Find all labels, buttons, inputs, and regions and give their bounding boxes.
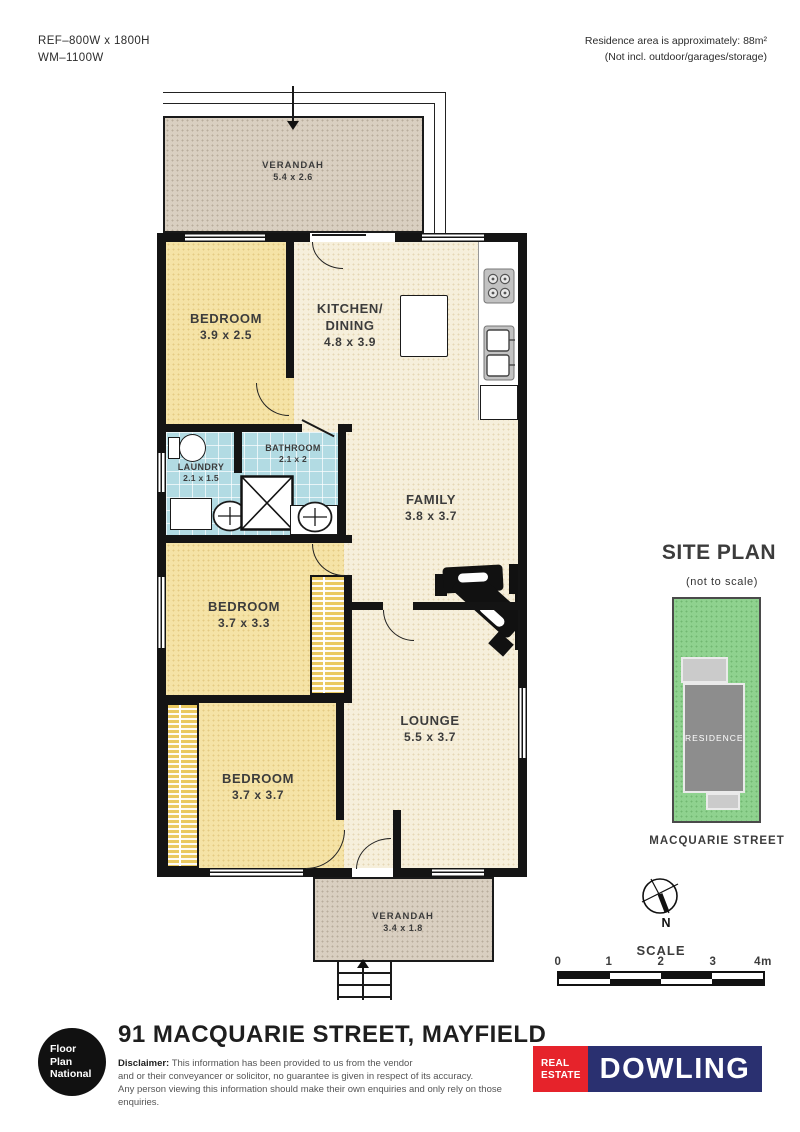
bedroom2-label: BEDROOM 3.7 x 3.3 xyxy=(208,598,280,631)
rear-door-opening xyxy=(352,868,393,877)
bedroom1-name: BEDROOM xyxy=(190,310,262,327)
steps-rail-right xyxy=(390,962,392,1000)
logo-line-3: National xyxy=(50,1068,91,1081)
area-line-2: (Not incl. outdoor/garages/storage) xyxy=(585,49,767,65)
bedroom3-label: BEDROOM 3.7 x 3.7 xyxy=(222,770,294,803)
wall-right xyxy=(518,233,527,877)
kitchen-label: KITCHEN/ DINING 4.8 x 3.9 xyxy=(317,300,383,350)
laundry-name: LAUNDRY xyxy=(178,462,224,473)
bedroom1-dims: 3.9 x 2.5 xyxy=(190,327,262,343)
verandah-top-dims: 5.4 x 2.6 xyxy=(262,172,324,183)
agency-logo-red-block: REAL ESTATE xyxy=(533,1046,588,1092)
site-plan-verandah-bottom xyxy=(706,793,740,810)
compass-north-label: N xyxy=(661,916,670,930)
scale-tick-0: 0 xyxy=(555,956,562,968)
laundry-label: LAUNDRY 2.1 x 1.5 xyxy=(178,462,224,483)
logo-line-2: Plan xyxy=(50,1056,91,1069)
site-plan-subtitle: (not to scale) xyxy=(686,572,758,590)
verandah-bottom-label: VERANDAH 3.4 x 1.8 xyxy=(372,911,434,934)
disclaimer-label: Disclaimer: xyxy=(118,1058,169,1069)
steps-rung-2 xyxy=(337,984,392,986)
kitchen-name-2: DINING xyxy=(317,317,383,334)
entry-arrow-head-icon xyxy=(287,121,299,130)
lounge-label: LOUNGE 5.5 x 3.7 xyxy=(400,712,459,745)
laundry-tub xyxy=(170,498,212,530)
wall-left xyxy=(157,233,166,877)
entry-arrow-line xyxy=(292,86,294,122)
scale-tick-1: 1 xyxy=(606,956,613,968)
kitchen-dims: 4.8 x 3.9 xyxy=(317,334,383,350)
site-plan-residence: RESIDENCE xyxy=(683,683,745,793)
wall-hall-stub xyxy=(393,810,401,868)
steps-arrow-head-icon xyxy=(357,959,369,968)
site-plan-title-text: SITE PLAN xyxy=(662,541,776,564)
scale-tick-2: 2 xyxy=(658,956,665,968)
lounge-dims: 5.5 x 3.7 xyxy=(400,729,459,745)
site-plan-street-label: MACQUARIE STREET xyxy=(649,831,784,849)
bedroom2-dims: 3.7 x 3.3 xyxy=(208,615,280,631)
ref-line-2: WM–1100W xyxy=(38,50,150,67)
verandah-top-label: VERANDAH 5.4 x 2.6 xyxy=(262,160,324,183)
floorplan-page: REF–800W x 1800H WM–1100W Residence area… xyxy=(0,0,800,1132)
disclaimer-line-2: and or their conveyancer or solicitor, n… xyxy=(118,1070,538,1083)
area-notes: Residence area is approximately: 88m² (N… xyxy=(585,33,767,65)
stove-icon xyxy=(483,268,515,304)
scale-bar xyxy=(557,971,765,986)
verandah-bottom-name: VERANDAH xyxy=(372,911,434,923)
verandah-bottom-dims: 3.4 x 1.8 xyxy=(372,923,434,934)
bedroom2-name: BEDROOM xyxy=(208,598,280,615)
logo-line-1: Floor xyxy=(50,1043,91,1056)
wall-laundry-divider xyxy=(234,432,242,473)
window-bedroom1-top xyxy=(185,233,265,242)
scale-bar-row-2 xyxy=(559,979,763,985)
ref-line-1: REF–800W x 1800H xyxy=(38,33,150,50)
street-label-text: MACQUARIE STREET xyxy=(649,835,784,847)
agency-logo-navy-block: DOWLING xyxy=(588,1046,762,1092)
wall-bedroom2-right xyxy=(344,575,352,695)
wardrobe-bedroom-3 xyxy=(166,703,199,868)
site-plan-title: SITE PLAN xyxy=(662,541,776,565)
lounge-name: LOUNGE xyxy=(400,712,459,729)
agency-name: DOWLING xyxy=(600,1053,751,1085)
family-name: FAMILY xyxy=(405,491,457,508)
window-lounge-right xyxy=(518,688,527,758)
site-plan-residence-label: RESIDENCE xyxy=(685,733,743,743)
family-label: FAMILY 3.8 x 3.7 xyxy=(405,491,457,524)
scale-tick-3: 3 xyxy=(710,956,717,968)
window-laundry-left xyxy=(157,453,166,492)
window-kitchen-top xyxy=(422,233,484,242)
wall-family-lounge-a xyxy=(344,602,383,610)
ref-notes: REF–800W x 1800H WM–1100W xyxy=(38,33,150,67)
steps-arrow-line xyxy=(362,968,364,1000)
bathroom-basin-icon xyxy=(297,501,333,534)
site-plan-subtitle-text: (not to scale) xyxy=(686,576,758,588)
window-bedroom3-bottom xyxy=(210,868,303,877)
agency-estate: ESTATE xyxy=(541,1070,581,1082)
compass-icon: N xyxy=(630,868,694,932)
agency-real: REAL xyxy=(541,1058,581,1070)
wall-bedroom3-right xyxy=(336,703,344,820)
scale-tick-4: 4m xyxy=(754,956,772,968)
kitchen-sink-icon xyxy=(483,325,515,381)
steps-rung-1 xyxy=(337,972,392,974)
kitchen-island xyxy=(400,295,448,357)
kitchen-name-1: KITCHEN/ xyxy=(317,300,383,317)
window-bedroom2-left xyxy=(157,577,166,648)
front-door-leaf xyxy=(312,234,366,236)
bedroom3-dims: 3.7 x 3.7 xyxy=(222,787,294,803)
window-lounge-bottom xyxy=(432,868,484,877)
fireplace-icon xyxy=(433,558,525,670)
shower-icon xyxy=(240,475,294,531)
bedroom1-label: BEDROOM 3.9 x 2.5 xyxy=(190,310,262,343)
disclaimer-line-1: Disclaimer: This information has been pr… xyxy=(118,1057,538,1070)
floorplan-national-logo: Floor Plan National xyxy=(38,1028,106,1096)
verandah-top-name: VERANDAH xyxy=(262,160,324,172)
wall-bath-right xyxy=(338,424,346,543)
wall-bath-bottom xyxy=(166,535,352,543)
steps-rail-left xyxy=(337,962,339,1000)
bedroom3-name: BEDROOM xyxy=(222,770,294,787)
disclaimer: Disclaimer: This information has been pr… xyxy=(118,1057,538,1109)
toilet-bowl-icon xyxy=(179,434,206,462)
page-title: 91 MACQUARIE STREET, MAYFIELD xyxy=(118,1021,546,1049)
wall-bedroom1-right xyxy=(286,242,294,378)
disclaimer-line-3: Any person viewing this information shou… xyxy=(118,1083,538,1109)
area-line-1: Residence area is approximately: 88m² xyxy=(585,33,767,49)
wall-bath-top-a xyxy=(166,424,302,432)
wall-family-lounge-b xyxy=(413,602,518,610)
wall-bedroom2-3-divider xyxy=(166,695,352,703)
family-dims: 3.8 x 3.7 xyxy=(405,508,457,524)
site-plan-verandah-top xyxy=(681,657,728,683)
bathroom-label: BATHROOM 2.1 x 2 xyxy=(265,443,321,464)
bathroom-dims: 2.1 x 2 xyxy=(265,454,321,464)
laundry-dims: 2.1 x 1.5 xyxy=(178,473,224,483)
bathroom-name: BATHROOM xyxy=(265,443,321,454)
steps-rung-3 xyxy=(337,996,392,998)
kitchen-pantry xyxy=(480,385,518,420)
